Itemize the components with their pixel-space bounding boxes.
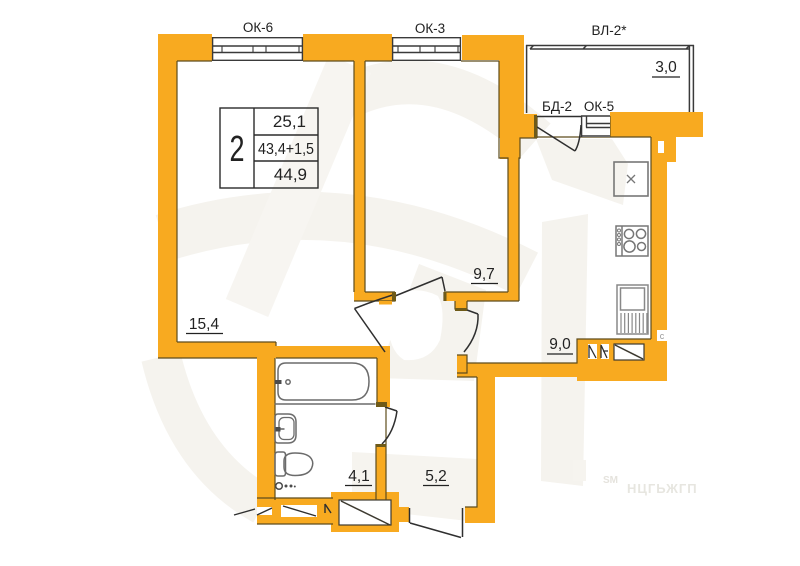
svg-text:9,0: 9,0 [549, 336, 571, 353]
svg-text:4,1: 4,1 [348, 468, 370, 485]
svg-text:ОК-5: ОК-5 [584, 99, 614, 114]
svg-text:15,4: 15,4 [189, 316, 220, 333]
svg-text:SM: SM [603, 475, 618, 486]
svg-text:44,9: 44,9 [274, 165, 307, 184]
svg-text:9,7: 9,7 [473, 266, 495, 283]
svg-text:2: 2 [229, 128, 244, 169]
svg-text:ОК-6: ОК-6 [243, 20, 273, 35]
svg-text:5,2: 5,2 [425, 468, 447, 485]
svg-text:НЦГЬЖГП: НЦГЬЖГП [627, 481, 698, 496]
svg-text:БД-2: БД-2 [542, 99, 572, 114]
svg-text:ОК-3: ОК-3 [415, 21, 445, 36]
svg-text:43,4+1,5: 43,4+1,5 [258, 141, 314, 158]
svg-text:25,1: 25,1 [273, 112, 306, 131]
svg-text:c: c [660, 331, 665, 341]
svg-text:3,0: 3,0 [655, 59, 677, 76]
svg-text:ВЛ-2*: ВЛ-2* [592, 23, 628, 38]
